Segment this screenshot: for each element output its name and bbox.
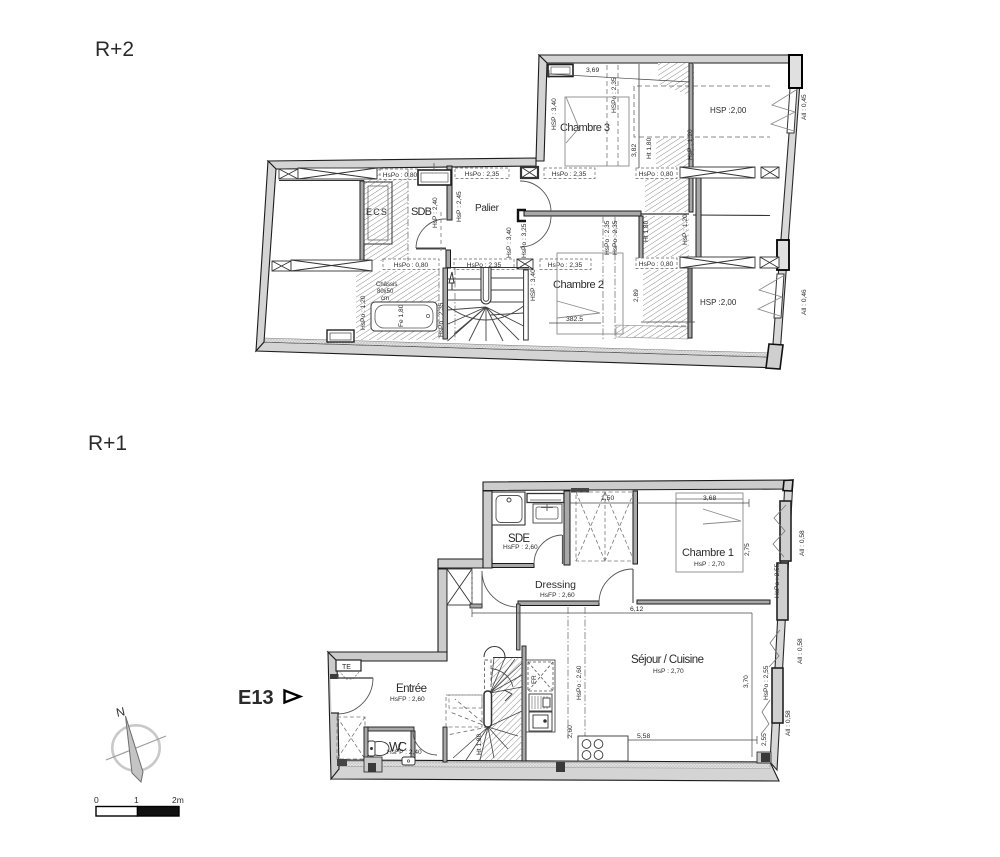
svg-text:2,60: 2,60 [567, 725, 574, 738]
svg-text:3,70: 3,70 [743, 675, 750, 688]
svg-text:HSP :2,00: HSP :2,00 [700, 298, 737, 307]
svg-text:HsPo : 2,55: HsPo : 2,55 [763, 665, 770, 700]
svg-text:HsPo : 0,80: HsPo : 0,80 [383, 172, 418, 179]
svg-text:FR: FR [531, 675, 538, 684]
svg-text:HsPo : 1,20: HsPo : 1,20 [360, 295, 367, 330]
svg-text:5,58: 5,58 [637, 733, 650, 740]
svg-text:HSPo : 2,35: HSPo : 2,35 [611, 77, 618, 113]
svg-text:HsPo : 2,35: HsPo : 2,35 [612, 220, 619, 255]
svg-text:Chambre 1: Chambre 1 [682, 547, 734, 559]
svg-text:382.5: 382.5 [566, 316, 583, 323]
svg-text:HsPo : 0,80: HsPo : 0,80 [639, 171, 674, 178]
svg-text:HsPo : 2,35: HsPo : 2,35 [438, 302, 445, 337]
svg-text:HsPo : 2,35: HsPo : 2,35 [604, 220, 611, 255]
svg-text:Ht 1,80: Ht 1,80 [646, 137, 653, 159]
svg-text:1,50: 1,50 [601, 495, 614, 502]
svg-text:HsP : 2,45: HsP : 2,45 [456, 191, 463, 222]
svg-text:6,12: 6,12 [630, 606, 643, 613]
svg-text:HsP : 1,20: HsP : 1,20 [682, 214, 689, 245]
svg-text:ECS: ECS [366, 207, 388, 217]
svg-text:All : 0,45: All : 0,45 [801, 94, 808, 120]
svg-text:HsP : 2,70: HsP : 2,70 [694, 561, 725, 568]
svg-text:2,75: 2,75 [744, 543, 751, 556]
svg-text:HsP : 2,40: HsP : 2,40 [432, 197, 439, 228]
svg-text:R+1: R+1 [88, 432, 127, 455]
svg-text:HsPo : 2,60: HsPo : 2,60 [576, 665, 583, 700]
svg-text:HsFP : 2,60: HsFP : 2,60 [540, 592, 575, 599]
svg-text:HsP : 1,20: HsP : 1,20 [687, 129, 694, 160]
svg-text:HSP : 3,40: HSP : 3,40 [551, 98, 558, 130]
svg-text:3,82: 3,82 [631, 144, 638, 157]
svg-text:All : 0,58: All : 0,58 [785, 710, 792, 736]
svg-text:0: 0 [94, 795, 99, 805]
svg-text:HsPo : 2,55: HsPo : 2,55 [774, 563, 781, 598]
svg-text:cm: cm [381, 296, 389, 302]
svg-text:Fe 1,80: Fe 1,80 [398, 304, 405, 327]
svg-text:HsFP : 2,60: HsFP : 2,60 [503, 544, 538, 551]
svg-text:1: 1 [134, 795, 139, 805]
svg-text:HsPo : 3,25: HsPo : 3,25 [521, 223, 528, 258]
svg-text:E13: E13 [238, 687, 274, 709]
svg-text:80x50: 80x50 [377, 289, 394, 295]
svg-text:Chambre 2: Chambre 2 [553, 279, 604, 291]
svg-text:Dressing: Dressing [535, 579, 576, 591]
svg-text:All : 0,58: All : 0,58 [799, 530, 806, 556]
svg-text:Séjour / Cuisine: Séjour / Cuisine [631, 654, 704, 666]
svg-text:Ht 1,80: Ht 1,80 [643, 220, 650, 242]
svg-text:HsFP : 2,40: HsFP : 2,40 [387, 749, 422, 756]
svg-text:2,89: 2,89 [633, 289, 640, 302]
svg-text:Chambre 3: Chambre 3 [560, 122, 610, 134]
svg-text:R+2: R+2 [95, 38, 134, 61]
svg-text:All : 0,46: All : 0,46 [801, 289, 808, 315]
svg-text:HsPo : 0,80: HsPo : 0,80 [394, 262, 429, 269]
svg-text:TE: TE [342, 664, 351, 671]
svg-text:SDB: SDB [411, 206, 432, 218]
svg-text:2m: 2m [172, 795, 184, 805]
svg-text:All : 0,58: All : 0,58 [797, 638, 804, 664]
svg-text:Châssis: Châssis [376, 282, 397, 288]
svg-text:3,68: 3,68 [703, 495, 716, 502]
svg-text:Palier: Palier [475, 203, 500, 214]
svg-text:HsP : 3,40: HsP : 3,40 [506, 227, 513, 258]
svg-text:HsPo : 0,80: HsPo : 0,80 [639, 261, 674, 268]
svg-text:Ht 1,80: Ht 1,80 [476, 733, 483, 755]
svg-text:Entrée: Entrée [396, 683, 427, 695]
svg-text:HsFP : 2,60: HsFP : 2,60 [390, 696, 425, 703]
svg-text:3,69: 3,69 [586, 67, 599, 74]
svg-text:HsPo : 2,35: HsPo : 2,35 [465, 171, 500, 178]
svg-text:2,55: 2,55 [761, 733, 768, 746]
svg-text:HsPo : 2,35: HsPo : 2,35 [548, 262, 583, 269]
svg-text:HsPo : 2,35: HsPo : 2,35 [552, 171, 587, 178]
svg-text:HsP : 2,70: HsP : 2,70 [653, 668, 684, 675]
svg-text:HSP : 3,40: HSP : 3,40 [530, 269, 537, 301]
svg-text:HSP :2,00: HSP :2,00 [710, 106, 747, 115]
